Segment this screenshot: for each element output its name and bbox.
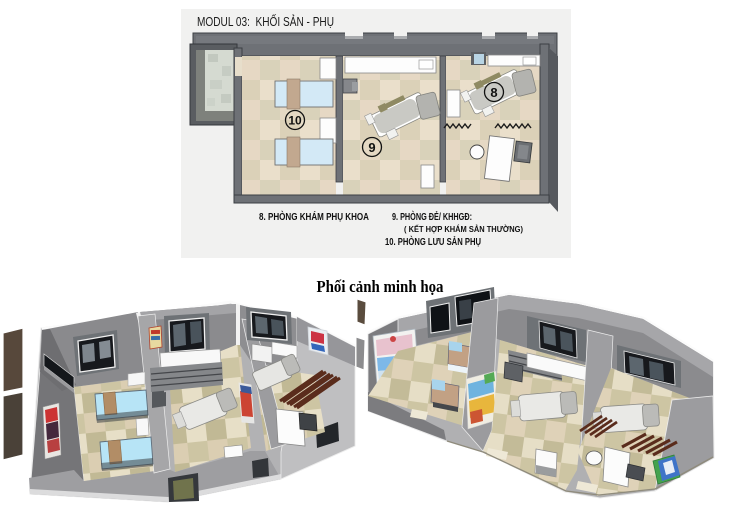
svg-text:( KẾT HỢP KHÁM SẢN THƯỜNG): ( KẾT HỢP KHÁM SẢN THƯỜNG) [404, 223, 523, 234]
svg-text:9: 9 [368, 140, 375, 155]
svg-text:Phối cảnh minh họa: Phối cảnh minh họa [317, 277, 444, 296]
svg-text:9. PHÒNG ĐẺ/ KHHGĐ:: 9. PHÒNG ĐẺ/ KHHGĐ: [392, 210, 472, 223]
svg-text:8: 8 [490, 85, 497, 100]
svg-text:10: 10 [288, 114, 302, 128]
svg-text:10. PHÒNG LƯU SẢN PHỤ: 10. PHÒNG LƯU SẢN PHỤ [385, 235, 481, 248]
svg-text:8. PHÒNG KHÁM PHỤ KHOA: 8. PHÒNG KHÁM PHỤ KHOA [259, 210, 369, 223]
svg-text:MODUL 03: KHỐI SẢN - PHỤ: MODUL 03: KHỐI SẢN - PHỤ [197, 14, 334, 29]
